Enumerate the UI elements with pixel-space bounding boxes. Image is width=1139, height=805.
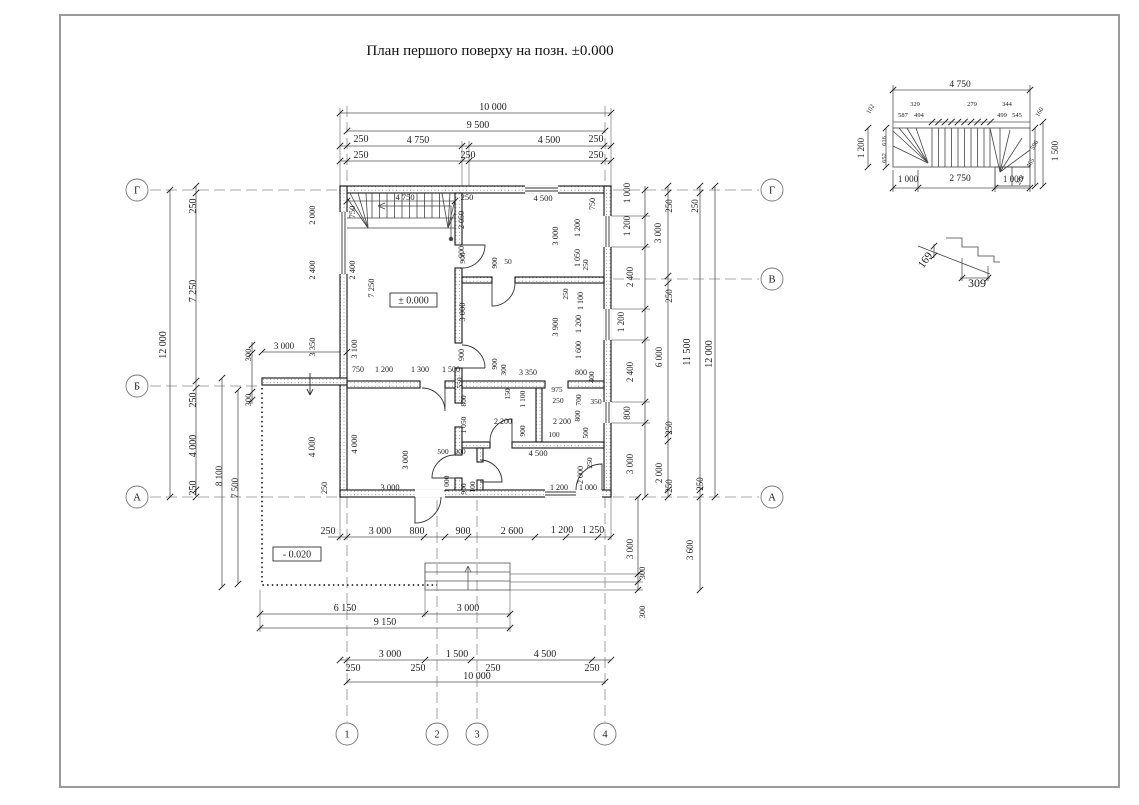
drawing-sheet: План першого поверху на позн. ±0.000	[0, 0, 1139, 805]
axis-bubble-label: В	[768, 275, 775, 286]
dimension-label: 1 100	[576, 292, 585, 310]
dimension-label: 900	[454, 447, 466, 456]
dimension-label: 900	[456, 526, 471, 537]
dimension-label: 800	[622, 406, 632, 420]
dimension-label: 4 000	[307, 436, 317, 457]
dimension-label: 9 150	[374, 617, 397, 628]
dimension-label: 4 750	[395, 192, 414, 202]
dimension-label: 900	[458, 252, 467, 264]
dimension-label: 10 000	[463, 671, 491, 682]
dimension-label: 50	[504, 257, 512, 266]
dimension-label: 250	[561, 288, 570, 300]
dimension-label: 300	[499, 364, 508, 376]
dimension-label: 250	[589, 134, 604, 145]
dimension-label: 3 350	[519, 368, 537, 377]
floor-plan-drawing: План першого поверху на позн. ±0.000	[0, 0, 1139, 805]
dimension-label: 500	[437, 447, 449, 456]
dimension-label: 2 000	[307, 205, 317, 224]
dimension-label: 2 050	[457, 211, 466, 229]
dimension-label: 494	[914, 112, 925, 119]
dimension-label: 900	[459, 483, 468, 495]
dimension-label: 3 900	[550, 317, 560, 336]
dimension-label: 596	[1029, 139, 1040, 152]
axis-bubble: 1	[336, 723, 358, 745]
dimension-label: 12 000	[704, 340, 715, 368]
dimension-label: 2 400	[307, 260, 317, 279]
dimension-label: 500	[581, 427, 590, 439]
axis-bubble-label: 1	[344, 730, 349, 741]
dimension-label: 3 000	[653, 222, 663, 243]
dimension-label: 1 100	[518, 390, 527, 407]
dimension-label: 8 100	[214, 465, 224, 486]
dimension-label: 250	[188, 199, 199, 214]
dimension-label: 400	[587, 371, 596, 383]
dimension-label: 4 750	[407, 135, 430, 146]
axis-bubble: 3	[466, 723, 488, 745]
axis-bubble: Г	[126, 179, 148, 201]
dimension-label: 2 750	[949, 174, 971, 184]
dimension-label: 2 400	[625, 361, 635, 382]
dimension-label: 250	[461, 150, 476, 161]
dimension-label: 7 500	[230, 477, 240, 498]
dimension-label: 4 000	[349, 434, 359, 453]
dimension-label: 100	[548, 430, 560, 439]
dimension-label: 3 600	[685, 539, 695, 560]
axis-bubble: А	[761, 486, 783, 508]
dimension-label: 150	[503, 388, 512, 400]
dimension-label: 975	[551, 385, 563, 394]
dimension-label: 545	[1012, 112, 1022, 119]
dimension-label: 1 050	[459, 416, 468, 433]
main-level-label: ± 0.000	[398, 296, 429, 307]
dimension-label: 2 200	[553, 417, 571, 426]
dimension-label: 3 000	[380, 482, 399, 492]
dimension-label: 250	[188, 481, 199, 496]
dimension-label: 250	[321, 526, 336, 537]
dimension-label: 750	[588, 198, 597, 210]
axis-bubble-label: А	[768, 493, 776, 504]
dimension-label: 250	[589, 150, 604, 161]
porch-steps	[425, 563, 510, 590]
dimension-label: 1 000	[898, 174, 919, 184]
axis-bubble: 2	[426, 723, 448, 745]
dimension-label: 12 000	[158, 331, 169, 359]
dimension-label: 900	[457, 349, 466, 361]
dimension-label: 800	[459, 395, 468, 407]
dimension-label: 1 200	[551, 525, 574, 536]
level-mark-terrace: - 0.020	[273, 547, 321, 561]
axis-bubble: В	[761, 268, 783, 290]
dimension-label: 2 600	[501, 526, 524, 537]
dimension-label: 1 200	[573, 219, 582, 237]
axis-bubble-label: Г	[134, 186, 140, 197]
dimension-label: 550	[455, 377, 464, 389]
dimension-label: 169	[916, 250, 936, 271]
dimension-label: 250	[354, 150, 369, 161]
dimension-label: 750	[347, 206, 357, 219]
dimension-label: 1 200	[856, 137, 866, 158]
axis-bubble-label: Г	[769, 186, 775, 197]
axis-bubble: 4	[594, 723, 616, 745]
axis-bubble: Б	[126, 375, 148, 397]
dimension-label: 250	[320, 482, 329, 494]
dimension-label: 300	[243, 349, 253, 362]
dimension-label: 4 500	[534, 649, 557, 660]
dimension-label: 900	[518, 425, 527, 437]
dimension-label: 6 000	[654, 346, 664, 367]
dimension-label: 11 500	[682, 338, 693, 365]
dimension-label: 1 000	[579, 483, 597, 492]
dimension-label: 700	[574, 394, 583, 406]
dimension-label: 250	[346, 663, 361, 674]
dimension-label: 3 000	[625, 538, 635, 559]
dimension-label: 1 200	[574, 315, 583, 333]
dimension-label: 7 250	[188, 280, 199, 303]
dimension-label: 3 000	[550, 226, 560, 245]
dimension-label: 250	[585, 457, 594, 469]
dimension-label: 1 500	[446, 649, 469, 660]
dimension-label: 1 250	[582, 525, 605, 536]
dimension-label: 6 150	[334, 603, 357, 614]
dimension-label: 1 200	[375, 365, 393, 374]
dimension-label: 1 000	[1003, 174, 1024, 184]
dimension-label: 329	[910, 101, 920, 108]
windows	[340, 186, 612, 498]
axis-bubble-label: 2	[434, 730, 439, 741]
dimension-label: 344	[1002, 101, 1013, 108]
dimension-label: 300	[637, 567, 647, 580]
dimension-label: 3 100	[349, 339, 359, 358]
dimension-label: 2 200	[494, 417, 512, 426]
level-mark-main: ± 0.000	[390, 293, 437, 307]
dimension-label: 2 000	[654, 462, 664, 483]
dimension-label: 250	[585, 663, 600, 674]
dimension-label: 7 250	[366, 278, 376, 297]
dimension-label: 1 500	[442, 365, 460, 374]
dimension-label: 900	[490, 358, 499, 370]
dimension-label: 1 000	[622, 182, 632, 203]
dimension-label: 250	[664, 289, 674, 303]
dimension-label: 3 000	[274, 341, 295, 351]
dimension-label: 652	[881, 153, 888, 163]
dimension-label: 250	[461, 192, 474, 202]
axis-bubble-label: А	[133, 493, 141, 504]
dimension-label: 4 750	[949, 80, 971, 90]
dimension-label: 800	[573, 410, 582, 422]
dimension-label: 300	[637, 606, 647, 619]
dimension-label: 160	[1034, 106, 1045, 118]
axis-bubble-label: 4	[602, 730, 608, 741]
dimension-label: 3 000	[369, 526, 392, 537]
terrace-level-label: - 0.020	[283, 550, 311, 561]
dimension-label: 1 300	[411, 365, 429, 374]
dimension-label: 4 500	[528, 448, 547, 458]
dimension-label: 250	[664, 199, 674, 213]
dimension-label: 250	[664, 479, 674, 493]
dimension-label: 1 500	[1050, 140, 1060, 161]
dimension-label: 250	[695, 477, 705, 491]
dimension-label: 279	[967, 101, 977, 108]
axis-bubble: Г	[761, 179, 783, 201]
dimension-label: 1 600	[574, 341, 583, 359]
dimension-label: 250	[354, 134, 369, 145]
dimension-label: 4 500	[538, 135, 561, 146]
dimension-label: 3 000	[457, 603, 480, 614]
dimension-label: 250	[188, 393, 199, 408]
dimension-label: 1 000	[442, 475, 451, 492]
dimension-label: 250	[581, 259, 590, 271]
dimension-label: 250	[411, 663, 426, 674]
dimension-label: 3 000	[400, 450, 410, 469]
dimension-label: 800	[575, 368, 587, 377]
dimension-label: 900	[490, 257, 499, 269]
dimension-label: 4 000	[188, 435, 199, 458]
dimension-label: 465	[1025, 157, 1036, 169]
axis-bubble: А	[126, 486, 148, 508]
dimension-label: 350	[590, 397, 602, 406]
dimension-label: 3 000	[457, 302, 467, 321]
axis-bubble-label: 3	[474, 730, 479, 741]
dimension-label: 100	[468, 481, 477, 493]
dimension-label: 4 500	[533, 193, 552, 203]
dimension-label: 10 000	[479, 102, 507, 113]
dimension-label: 587	[898, 112, 909, 119]
dimension-label: 1 200	[616, 311, 626, 332]
dimension-label: 1 200	[550, 483, 568, 492]
dimension-label: 300	[243, 394, 253, 407]
dimension-label: 800	[410, 526, 425, 537]
dimension-label: 250	[664, 421, 674, 435]
dimension-label: 499	[997, 112, 1007, 119]
dimension-label: 250	[690, 199, 700, 213]
dimension-label: 3 000	[625, 453, 635, 474]
drawing-title: План першого поверху на позн. ±0.000	[366, 43, 613, 59]
dimension-label: 2 400	[347, 260, 357, 279]
dimension-label: 1 200	[622, 215, 632, 236]
dimension-label: 9 500	[467, 120, 490, 131]
dimension-label: 2 400	[625, 266, 635, 287]
dimension-label: 250	[552, 396, 564, 405]
dimension-label: 750	[352, 365, 364, 374]
axis-bubble-label: Б	[134, 382, 140, 393]
dimension-label: 3 350	[307, 337, 317, 356]
dimension-label: 2 000	[576, 466, 585, 484]
dimension-label: 102	[865, 103, 876, 115]
dimension-label: 616	[881, 135, 888, 146]
dimension-label: 3 000	[379, 649, 402, 660]
dimension-label: 309	[968, 276, 986, 290]
